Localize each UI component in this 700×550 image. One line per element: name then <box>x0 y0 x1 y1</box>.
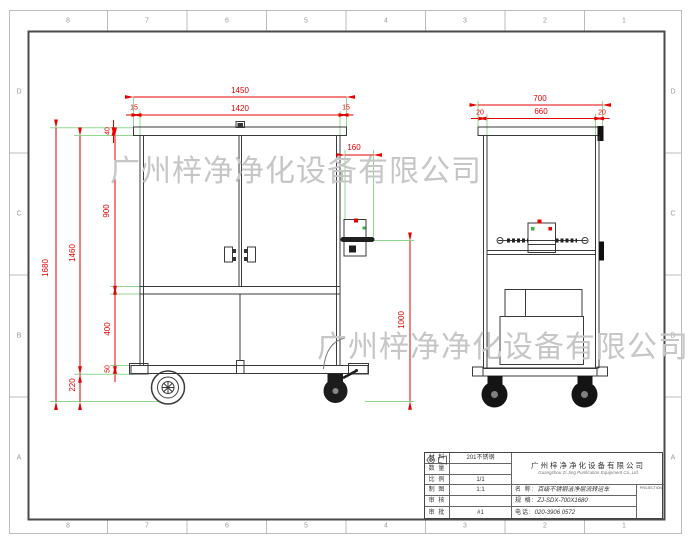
product-name-row: 名 称: 百级不锈钢洁净层流转运车 <box>512 485 637 496</box>
dim-side-width-total: 700 <box>533 95 546 103</box>
phone-row: 电话: 020-3906 0572 <box>512 507 637 518</box>
zone-label-top: 1 <box>622 18 626 25</box>
front-left-wheel <box>152 371 185 404</box>
projection-cell: PROJECTION <box>637 485 664 518</box>
title-block-value: 1:1 <box>450 485 512 496</box>
dim-side-margin-left: 20 <box>476 110 484 117</box>
title-block: 材 料 201不锈钢 广州梓净净化设备有限公司 Guangzhou Zi Jin… <box>424 452 663 519</box>
spec-row: 规 格: ZJ-SDX-700X1680 <box>512 496 637 507</box>
dim-front-cap-height: 40 <box>105 127 112 135</box>
zone-label-top: 8 <box>66 18 70 25</box>
spec-value: ZJ-SDX-700X1680 <box>537 498 587 504</box>
side-view <box>473 126 608 408</box>
dim-front-total-height: 1680 <box>42 259 50 277</box>
side-control-panel <box>528 220 556 253</box>
zone-label-bottom: 4 <box>384 523 388 530</box>
zone-label-left: C <box>16 211 21 218</box>
dimension-lines <box>56 97 610 402</box>
title-block-label: 制 图 <box>425 485 450 496</box>
dim-side-margin-right: 20 <box>598 110 606 117</box>
zone-label-bottom: 2 <box>543 523 547 530</box>
zone-label-left: B <box>17 333 22 340</box>
zone-label-top: 7 <box>145 18 149 25</box>
zone-label-right: B <box>671 333 676 340</box>
zone-label-top: 3 <box>463 18 467 25</box>
dim-front-margin-right: 15 <box>342 105 350 112</box>
front-view <box>130 122 375 405</box>
zone-label-top: 6 <box>225 18 229 25</box>
zone-label-bottom: 7 <box>145 523 149 530</box>
company-name-en: Guangzhou Zi Jing Purification Equipment… <box>538 471 638 476</box>
zone-label-right: A <box>671 455 676 462</box>
zone-label-bottom: 3 <box>463 523 467 530</box>
zone-label-right: D <box>670 89 675 96</box>
title-block-value <box>450 464 512 475</box>
dim-front-side-box-height: 1000 <box>398 311 406 329</box>
zone-label-bottom: 1 <box>622 523 626 530</box>
title-block-label: 比 例 <box>425 475 450 486</box>
zone-label-top: 4 <box>384 18 388 25</box>
front-side-box <box>341 219 375 257</box>
title-block-value: #1 <box>450 507 512 518</box>
title-block-label: 审 核 <box>425 496 450 507</box>
phone-label: 电话: <box>515 510 532 516</box>
product-name-value: 百级不锈钢洁净层流转运车 <box>537 487 609 493</box>
zone-label-bottom: 5 <box>304 523 308 530</box>
company-name-cn: 广州梓净净化设备有限公司 <box>531 462 645 470</box>
dim-front-door-height: 900 <box>103 204 111 217</box>
dim-front-width-inner: 1420 <box>231 105 249 113</box>
dim-front-side-box-width: 160 <box>347 144 360 152</box>
projection-caption: PROJECTION <box>640 487 662 490</box>
title-block-value: 201不锈钢 <box>450 453 512 464</box>
dim-front-lower-panel: 400 <box>104 322 112 335</box>
zone-label-left: D <box>16 89 21 96</box>
dim-front-width-total: 1450 <box>231 87 249 95</box>
title-block-value <box>450 496 512 507</box>
dim-front-margin-left: 15 <box>130 105 138 112</box>
front-right-caster <box>324 369 359 403</box>
product-name-label: 名 称: <box>515 487 534 493</box>
dim-front-base-height: 50 <box>105 365 112 373</box>
dim-side-width-inner: 660 <box>534 108 547 116</box>
zone-label-right: C <box>670 211 675 218</box>
phone-value: 020-3906 0572 <box>535 510 575 516</box>
zone-label-left: A <box>17 455 22 462</box>
zone-label-bottom: 6 <box>225 523 229 530</box>
dim-front-ground-clearance: 220 <box>69 378 77 391</box>
title-block-label: 审 批 <box>425 507 450 518</box>
drawing-sheet: 8 7 6 5 4 3 2 1 8 7 6 5 4 3 2 1 D C B A … <box>0 0 700 550</box>
title-block-company: 广州梓净净化设备有限公司 Guangzhou Zi Jing Purificat… <box>512 453 664 485</box>
zone-label-bottom: 8 <box>66 523 70 530</box>
title-block-value: 1/1 <box>450 475 512 486</box>
zone-label-top: 2 <box>543 18 547 25</box>
dim-front-body-height: 1460 <box>69 244 77 262</box>
side-casters <box>482 376 598 408</box>
zone-label-top: 5 <box>304 18 308 25</box>
spec-label: 规 格: <box>515 498 534 504</box>
